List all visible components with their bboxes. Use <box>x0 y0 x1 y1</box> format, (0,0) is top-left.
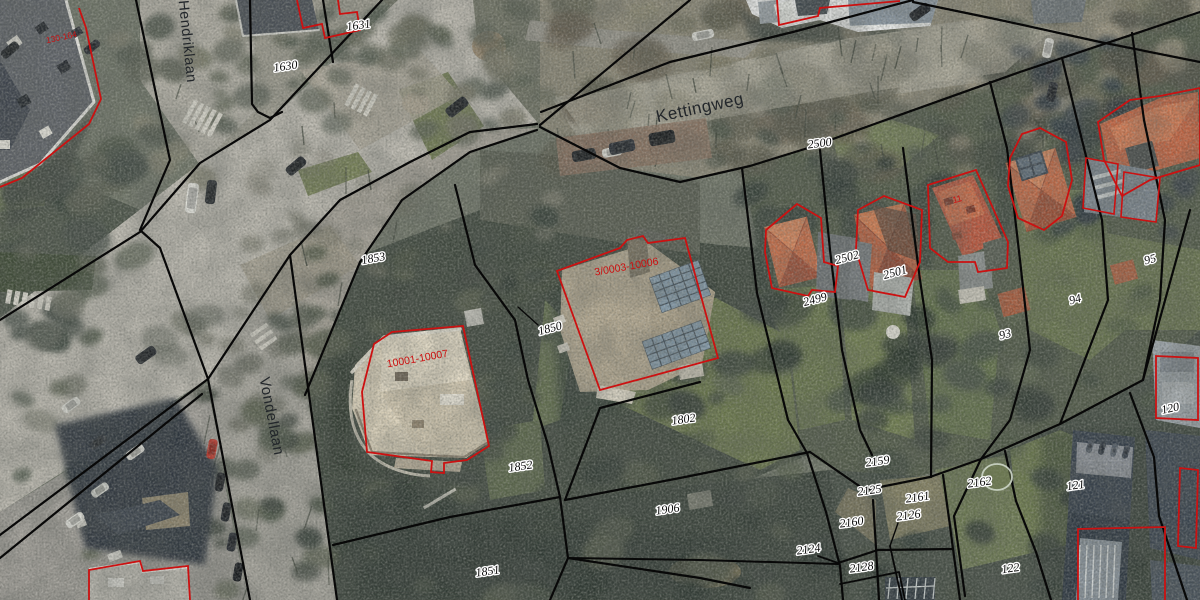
svg-text:122: 122 <box>1001 560 1021 576</box>
svg-text:121: 121 <box>1066 477 1086 493</box>
svg-text:2500: 2500 <box>807 135 833 152</box>
